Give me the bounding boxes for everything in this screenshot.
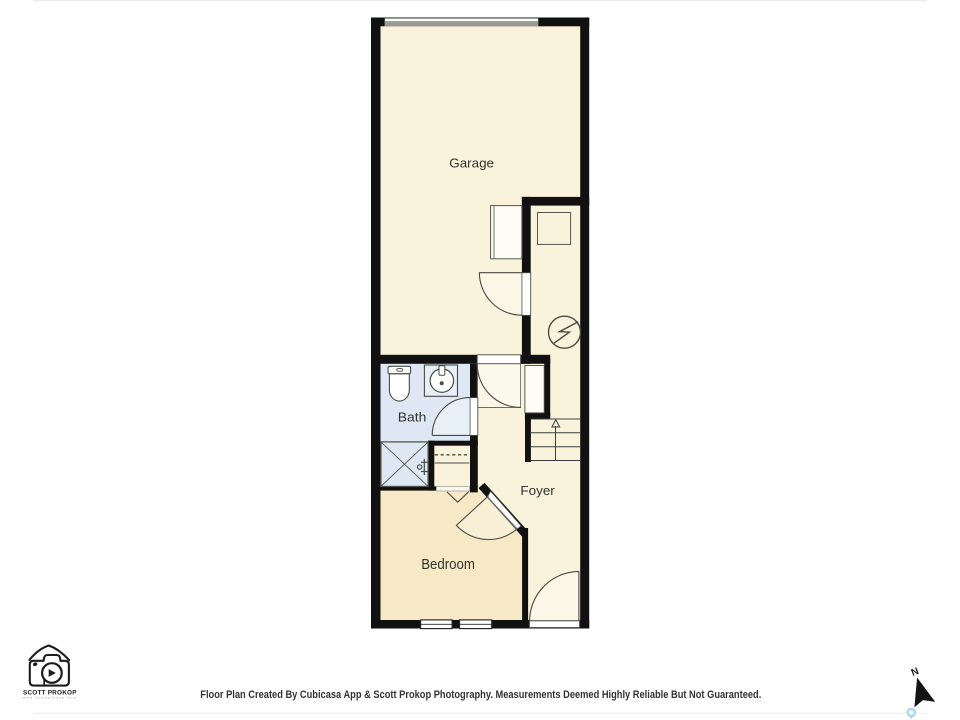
svg-text:Garage: Garage — [449, 156, 494, 171]
svg-text:Bath: Bath — [398, 410, 427, 425]
svg-text:Floor Plan Created By Cubicasa: Floor Plan Created By Cubicasa App & Sco… — [200, 689, 761, 701]
svg-text:N: N — [910, 666, 921, 679]
svg-text:Bedroom: Bedroom — [421, 556, 475, 573]
svg-text:www.scottprokop.com: www.scottprokop.com — [23, 695, 76, 699]
svg-text:Foyer: Foyer — [520, 483, 555, 498]
